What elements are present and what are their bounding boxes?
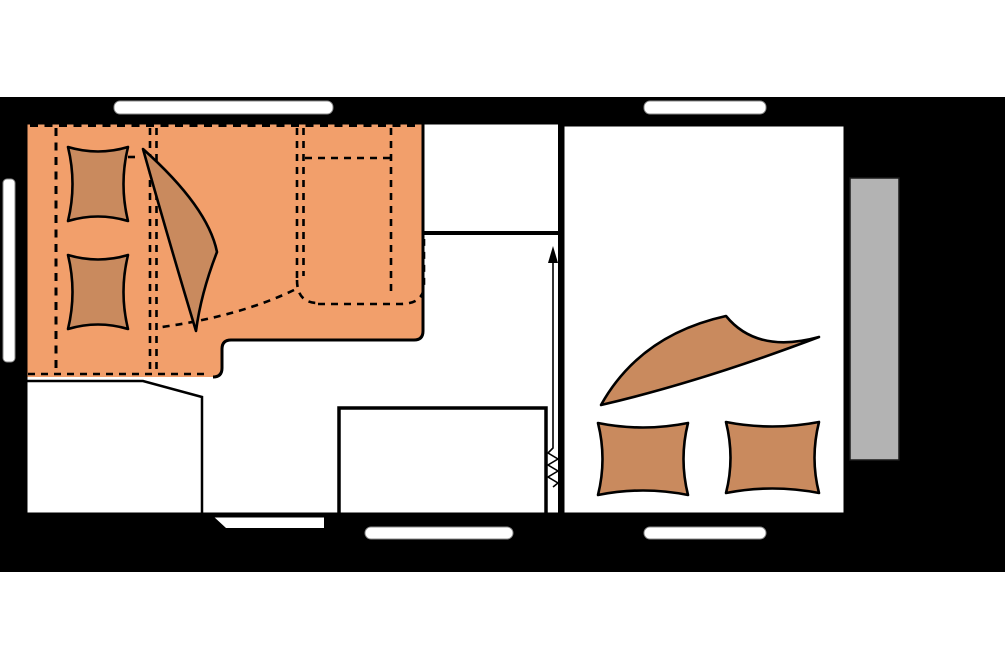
front-bed-area	[25, 122, 424, 377]
pillow-icon-front-1	[68, 147, 128, 221]
window-top-rear-icon	[644, 101, 766, 114]
rear-bumper	[850, 178, 899, 460]
window-front-icon	[3, 179, 15, 362]
floorplan-canvas	[0, 0, 1005, 670]
window-top-front-icon	[114, 101, 333, 114]
window-bottom-rear-icon	[644, 527, 766, 539]
pillow-icon-rear-2	[726, 422, 819, 493]
pillow-icon-rear-1	[598, 423, 688, 495]
window-bottom-middle-icon	[365, 527, 513, 539]
caravan-floorplan-diagram	[0, 0, 1005, 670]
pillow-icon-front-2	[68, 255, 128, 329]
entry-step-icon	[213, 516, 324, 528]
